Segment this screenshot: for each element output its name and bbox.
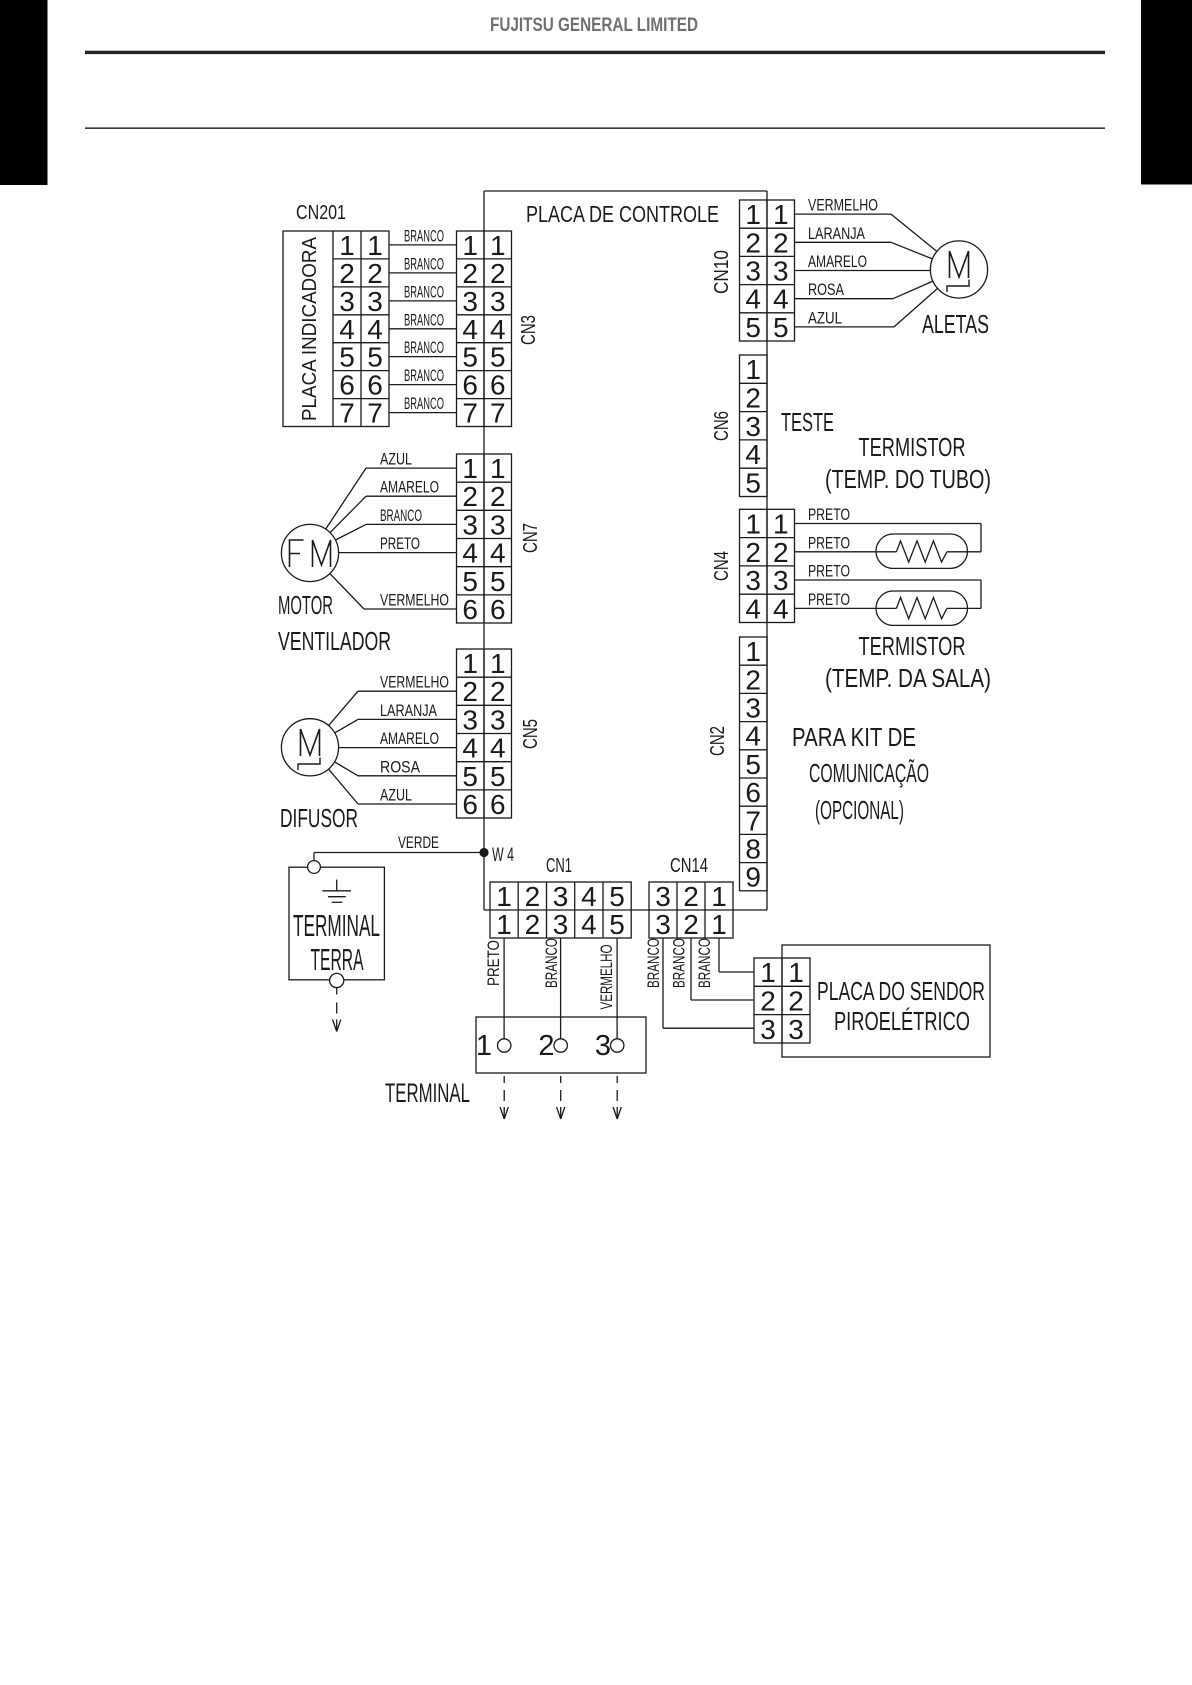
svg-text:BRANCO: BRANCO xyxy=(404,226,444,245)
svg-text:4: 4 xyxy=(745,721,761,752)
svg-text:1: 1 xyxy=(773,509,789,540)
svg-text:2: 2 xyxy=(490,676,506,707)
svg-text:W 4: W 4 xyxy=(492,845,514,866)
svg-text:3: 3 xyxy=(773,256,789,287)
svg-text:2: 2 xyxy=(745,537,761,568)
svg-text:2: 2 xyxy=(538,1030,554,1062)
svg-text:ROSA: ROSA xyxy=(380,757,421,776)
svg-text:FUJITSU GENERAL LIMITED: FUJITSU GENERAL LIMITED xyxy=(490,15,698,36)
svg-text:6: 6 xyxy=(339,370,355,401)
svg-text:3: 3 xyxy=(655,909,671,940)
svg-text:(OPCIONAL): (OPCIONAL) xyxy=(815,795,904,825)
svg-text:AMARELO: AMARELO xyxy=(380,729,439,748)
svg-text:4: 4 xyxy=(745,593,761,624)
svg-text:CN4: CN4 xyxy=(711,551,733,581)
svg-text:5: 5 xyxy=(490,566,506,597)
svg-text:3: 3 xyxy=(773,565,789,596)
svg-text:4: 4 xyxy=(490,538,506,569)
svg-text:1: 1 xyxy=(462,230,478,261)
svg-text:PIROELÉTRICO: PIROELÉTRICO xyxy=(834,1006,970,1036)
svg-text:BRANCO: BRANCO xyxy=(644,938,663,988)
svg-text:1: 1 xyxy=(496,881,512,912)
svg-text:BRANCO: BRANCO xyxy=(695,938,714,988)
svg-text:4: 4 xyxy=(462,733,478,764)
svg-text:5: 5 xyxy=(462,342,478,373)
svg-text:7: 7 xyxy=(462,398,478,429)
svg-text:1: 1 xyxy=(490,648,506,679)
svg-text:VERMELHO: VERMELHO xyxy=(380,673,449,692)
svg-text:3: 3 xyxy=(745,411,761,442)
svg-text:4: 4 xyxy=(462,538,478,569)
svg-text:PRETO: PRETO xyxy=(808,590,850,609)
svg-text:3: 3 xyxy=(745,256,761,287)
svg-text:4: 4 xyxy=(490,733,506,764)
svg-text:CN1: CN1 xyxy=(546,855,572,877)
svg-text:CN3: CN3 xyxy=(518,315,540,345)
svg-text:2: 2 xyxy=(745,227,761,258)
svg-text:PRETO: PRETO xyxy=(808,533,850,552)
svg-text:4: 4 xyxy=(490,314,506,345)
svg-text:VERMELHO: VERMELHO xyxy=(380,591,449,610)
svg-text:(TEMP. DO TUBO): (TEMP. DO TUBO) xyxy=(825,464,991,494)
svg-text:1: 1 xyxy=(367,230,383,261)
svg-text:4: 4 xyxy=(745,284,761,315)
svg-text:CN14: CN14 xyxy=(670,855,708,877)
svg-text:2: 2 xyxy=(773,227,789,258)
svg-text:DIFUSOR: DIFUSOR xyxy=(280,803,358,833)
svg-text:4: 4 xyxy=(462,314,478,345)
svg-text:5: 5 xyxy=(745,312,761,343)
svg-text:2: 2 xyxy=(462,258,478,289)
svg-text:1: 1 xyxy=(711,909,727,940)
svg-text:CN2: CN2 xyxy=(707,726,729,756)
svg-text:6: 6 xyxy=(490,370,506,401)
svg-text:2: 2 xyxy=(490,258,506,289)
svg-text:BRANCO: BRANCO xyxy=(404,366,444,385)
svg-text:5: 5 xyxy=(490,761,506,792)
svg-text:9: 9 xyxy=(745,862,761,893)
svg-text:3: 3 xyxy=(462,509,478,540)
svg-text:ALETAS: ALETAS xyxy=(922,309,989,339)
svg-text:7: 7 xyxy=(490,398,506,429)
svg-text:CN5: CN5 xyxy=(520,719,542,749)
svg-text:PRETO: PRETO xyxy=(808,505,850,524)
svg-text:2: 2 xyxy=(525,909,541,940)
svg-text:ROSA: ROSA xyxy=(808,280,844,299)
svg-text:BRANCO: BRANCO xyxy=(404,394,444,413)
svg-text:1: 1 xyxy=(339,230,355,261)
svg-text:3: 3 xyxy=(760,1014,776,1045)
svg-text:1: 1 xyxy=(745,636,761,667)
svg-text:2: 2 xyxy=(683,909,699,940)
svg-text:5: 5 xyxy=(490,342,506,373)
svg-text:1: 1 xyxy=(711,881,727,912)
svg-text:6: 6 xyxy=(490,789,506,820)
svg-text:MOTOR: MOTOR xyxy=(278,590,333,620)
svg-text:2: 2 xyxy=(367,258,383,289)
svg-text:4: 4 xyxy=(581,909,597,940)
svg-text:5: 5 xyxy=(462,761,478,792)
svg-text:5: 5 xyxy=(339,342,355,373)
svg-text:COMUNICAÇÃO: COMUNICAÇÃO xyxy=(809,758,929,788)
svg-text:7: 7 xyxy=(367,398,383,429)
svg-text:BRANCO: BRANCO xyxy=(542,938,561,988)
svg-text:6: 6 xyxy=(462,789,478,820)
svg-text:3: 3 xyxy=(490,286,506,317)
svg-text:3: 3 xyxy=(595,1030,611,1062)
svg-text:4: 4 xyxy=(367,314,383,345)
svg-text:2: 2 xyxy=(683,881,699,912)
svg-text:AMARELO: AMARELO xyxy=(808,252,867,271)
svg-text:5: 5 xyxy=(462,566,478,597)
svg-text:AZUL: AZUL xyxy=(808,308,842,327)
svg-text:1: 1 xyxy=(745,199,761,230)
svg-text:BRANCO: BRANCO xyxy=(404,338,444,357)
svg-text:BRANCO: BRANCO xyxy=(380,506,422,525)
svg-text:6: 6 xyxy=(367,370,383,401)
svg-text:1: 1 xyxy=(490,230,506,261)
svg-text:3: 3 xyxy=(553,909,569,940)
svg-text:4: 4 xyxy=(339,314,355,345)
svg-text:5: 5 xyxy=(609,881,625,912)
svg-text:PRETO: PRETO xyxy=(380,534,420,553)
svg-text:BRANCO: BRANCO xyxy=(404,282,444,301)
svg-text:3: 3 xyxy=(462,286,478,317)
svg-text:1: 1 xyxy=(476,1030,492,1062)
svg-text:5: 5 xyxy=(367,342,383,373)
svg-text:PRETO: PRETO xyxy=(808,562,850,581)
svg-text:2: 2 xyxy=(745,383,761,414)
svg-text:4: 4 xyxy=(745,439,761,470)
svg-text:2: 2 xyxy=(339,258,355,289)
svg-text:1: 1 xyxy=(462,453,478,484)
svg-text:5: 5 xyxy=(773,312,789,343)
svg-text:6: 6 xyxy=(462,370,478,401)
svg-text:PLACA INDICADORA: PLACA INDICADORA xyxy=(299,236,321,421)
svg-text:6: 6 xyxy=(490,594,506,625)
svg-text:1: 1 xyxy=(745,509,761,540)
svg-text:4: 4 xyxy=(773,284,789,315)
svg-text:3: 3 xyxy=(462,704,478,735)
svg-text:1: 1 xyxy=(462,648,478,679)
svg-text:1: 1 xyxy=(760,957,776,988)
svg-text:1: 1 xyxy=(496,909,512,940)
svg-text:3: 3 xyxy=(490,509,506,540)
svg-text:CN10: CN10 xyxy=(711,250,733,294)
svg-text:3: 3 xyxy=(655,881,671,912)
svg-text:6: 6 xyxy=(462,594,478,625)
svg-text:PRETO: PRETO xyxy=(484,940,503,986)
svg-text:BRANCO: BRANCO xyxy=(404,254,444,273)
svg-text:2: 2 xyxy=(773,537,789,568)
svg-text:LARANJA: LARANJA xyxy=(380,701,437,720)
svg-text:CN6: CN6 xyxy=(711,411,733,441)
svg-text:LARANJA: LARANJA xyxy=(808,224,865,243)
svg-text:VERDE: VERDE xyxy=(398,833,439,852)
svg-text:AZUL: AZUL xyxy=(380,450,412,469)
svg-text:BRANCO: BRANCO xyxy=(670,938,689,988)
svg-text:PLACA DO SENDOR: PLACA DO SENDOR xyxy=(817,976,985,1006)
svg-text:1: 1 xyxy=(788,957,804,988)
svg-text:5: 5 xyxy=(745,467,761,498)
svg-text:(TEMP. DA SALA): (TEMP. DA SALA) xyxy=(825,663,991,693)
svg-text:4: 4 xyxy=(581,881,597,912)
svg-text:TERRA: TERRA xyxy=(311,942,364,977)
svg-text:AZUL: AZUL xyxy=(380,786,412,805)
svg-text:2: 2 xyxy=(760,986,776,1017)
svg-text:2: 2 xyxy=(788,986,804,1017)
svg-text:TERMISTOR: TERMISTOR xyxy=(859,432,966,462)
svg-text:VERMELHO: VERMELHO xyxy=(597,945,616,1010)
svg-text:3: 3 xyxy=(788,1014,804,1045)
svg-text:7: 7 xyxy=(745,805,761,836)
svg-text:TERMINAL: TERMINAL xyxy=(385,1078,470,1108)
svg-text:3: 3 xyxy=(745,693,761,724)
svg-text:1: 1 xyxy=(745,354,761,385)
svg-text:PARA KIT DE: PARA KIT DE xyxy=(792,722,916,752)
svg-text:5: 5 xyxy=(609,909,625,940)
svg-text:AMARELO: AMARELO xyxy=(380,478,439,497)
svg-text:3: 3 xyxy=(367,286,383,317)
svg-text:1: 1 xyxy=(490,453,506,484)
svg-text:7: 7 xyxy=(339,398,355,429)
svg-text:6: 6 xyxy=(745,777,761,808)
svg-text:BRANCO: BRANCO xyxy=(404,310,444,329)
svg-text:2: 2 xyxy=(462,481,478,512)
svg-text:PLACA DE CONTROLE: PLACA DE CONTROLE xyxy=(526,201,719,227)
svg-text:3: 3 xyxy=(339,286,355,317)
svg-text:3: 3 xyxy=(490,704,506,735)
svg-text:2: 2 xyxy=(745,664,761,695)
svg-text:8: 8 xyxy=(745,834,761,865)
svg-text:3: 3 xyxy=(745,565,761,596)
svg-text:1: 1 xyxy=(773,199,789,230)
svg-text:TESTE: TESTE xyxy=(781,407,834,437)
svg-text:VERMELHO: VERMELHO xyxy=(808,196,878,215)
svg-text:4: 4 xyxy=(773,593,789,624)
svg-text:TERMINAL: TERMINAL xyxy=(293,908,380,943)
svg-text:TERMISTOR: TERMISTOR xyxy=(859,631,966,661)
svg-text:VENTILADOR: VENTILADOR xyxy=(278,626,391,656)
svg-text:3: 3 xyxy=(553,881,569,912)
svg-text:CN201: CN201 xyxy=(296,202,346,224)
svg-text:2: 2 xyxy=(525,881,541,912)
svg-text:2: 2 xyxy=(490,481,506,512)
svg-text:5: 5 xyxy=(745,749,761,780)
svg-text:CN7: CN7 xyxy=(520,523,542,553)
svg-text:2: 2 xyxy=(462,676,478,707)
